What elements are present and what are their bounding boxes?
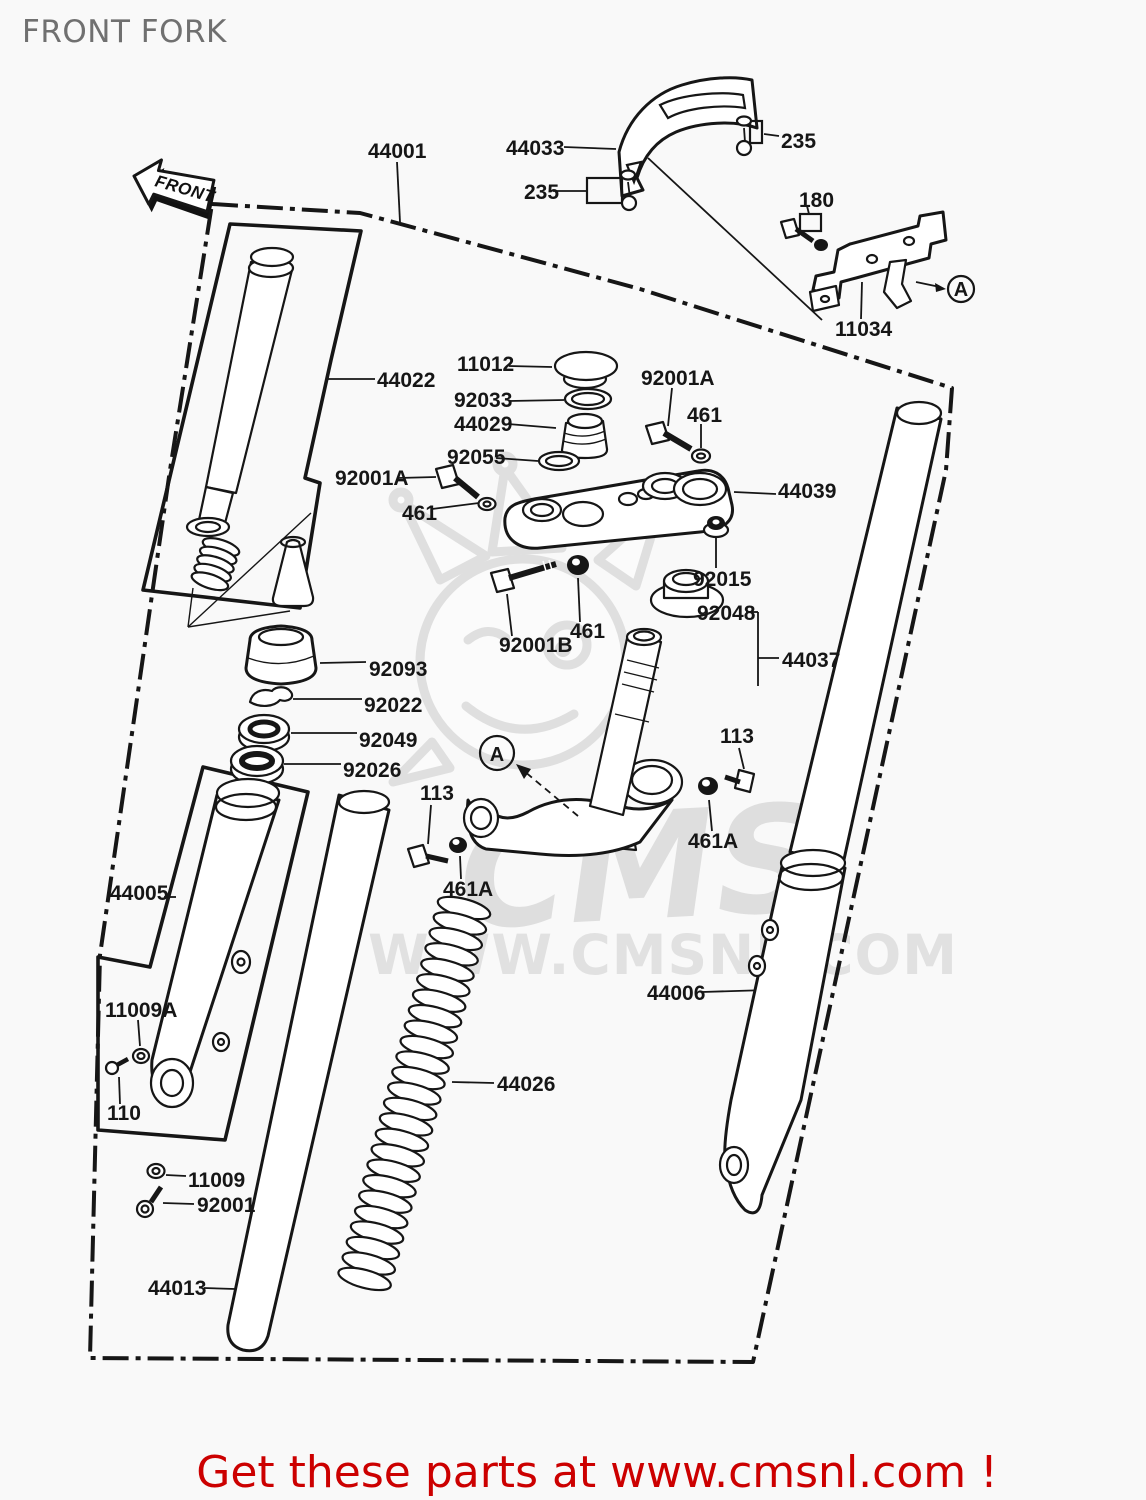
part-label-92001b[interactable]: 92001B [499, 634, 573, 657]
washer-461a-left [449, 837, 467, 853]
detail-marker-a-top-letter: A [954, 279, 968, 301]
circlip-92022 [250, 687, 292, 706]
washer-461-top [692, 450, 710, 463]
part-label-11009[interactable]: 11009 [188, 1169, 245, 1192]
part-label-92049[interactable]: 92049 [359, 729, 417, 752]
washer-11009a [133, 1049, 149, 1063]
part-label-44029[interactable]: 44029 [454, 413, 512, 436]
part-label-461a-right[interactable]: 461A [688, 830, 738, 853]
part-label-92001a-top[interactable]: 92001A [641, 367, 715, 390]
o-ring-92055 [539, 452, 579, 470]
part-label-11034[interactable]: 11034 [835, 318, 893, 341]
part-label-461-top[interactable]: 461 [687, 404, 722, 427]
brace-screw-right [737, 117, 762, 156]
part-label-44037[interactable]: 44037 [782, 649, 840, 672]
washer-11009 [148, 1164, 165, 1178]
front-fork-parts-diagram: CMS WWW.CMSNL.COM FRONT FORK FRONT [0, 0, 1146, 1500]
part-label-44013[interactable]: 44013 [148, 1277, 206, 1300]
part-label-92022[interactable]: 92022 [364, 694, 422, 717]
part-label-92055[interactable]: 92055 [447, 446, 506, 469]
part-label-92033[interactable]: 92033 [454, 389, 512, 412]
o-ring-92033 [565, 389, 611, 409]
detail-marker-a-bottom-letter: A [490, 744, 504, 766]
front-direction-arrow: FRONT [126, 154, 222, 228]
part-label-44026[interactable]: 44026 [497, 1073, 555, 1096]
part-label-44006[interactable]: 44006 [647, 982, 705, 1005]
bracket-bolt-180 [781, 214, 828, 251]
stem-locknut-44029 [562, 414, 607, 458]
part-label-235-left[interactable]: 235 [524, 181, 559, 204]
part-label-44039[interactable]: 44039 [778, 480, 836, 503]
clamp-bolt-92001a-left [436, 465, 478, 497]
drain-screw-110 [106, 1059, 128, 1074]
footer-shop-link[interactable]: Get these parts at www.cmsnl.com ! [196, 1447, 998, 1498]
part-label-11012[interactable]: 11012 [457, 353, 514, 376]
washer-461a-right [698, 777, 718, 795]
screw-92001 [137, 1187, 161, 1217]
clamp-bolt-113-left [408, 845, 448, 867]
part-label-180[interactable]: 180 [799, 189, 834, 212]
part-label-92015[interactable]: 92015 [693, 568, 752, 591]
part-label-44005[interactable]: 44005 [110, 882, 169, 905]
page-title: FRONT FORK [22, 14, 227, 50]
washer-461-left [479, 498, 496, 510]
steering-stem-cap-11012 [555, 352, 617, 388]
part-label-44001[interactable]: 44001 [368, 140, 427, 163]
brace-screw-left [587, 171, 636, 211]
part-label-113-left[interactable]: 113 [420, 782, 454, 805]
part-label-44033[interactable]: 44033 [506, 137, 564, 160]
fork-cover-bracket-11034 [810, 212, 946, 311]
part-label-92001a-left[interactable]: 92001A [335, 467, 409, 490]
part-label-461-mid[interactable]: 461 [570, 620, 605, 643]
part-label-113-right[interactable]: 113 [720, 725, 754, 748]
part-label-92026[interactable]: 92026 [343, 759, 401, 782]
damper-rod-assy [187, 248, 313, 606]
rubber-boot-92093 [246, 626, 316, 684]
seal-92026 [231, 746, 283, 784]
part-label-461a-left[interactable]: 461A [443, 878, 493, 901]
part-label-44022[interactable]: 44022 [377, 369, 435, 392]
part-label-92093[interactable]: 92093 [369, 658, 427, 681]
part-label-92001[interactable]: 92001 [197, 1194, 256, 1217]
fork-slider-44005 [151, 779, 279, 1107]
upper-triple-clamp [505, 470, 733, 548]
part-label-110[interactable]: 110 [107, 1102, 141, 1125]
part-label-461-left[interactable]: 461 [402, 502, 437, 525]
part-label-235-right[interactable]: 235 [781, 130, 816, 153]
detail-marker-a-top: A [916, 276, 974, 302]
part-label-92048[interactable]: 92048 [697, 602, 756, 625]
part-label-11009a[interactable]: 11009A [105, 999, 177, 1022]
fender-brace-part [619, 78, 757, 196]
nut-461-mid [567, 555, 589, 575]
